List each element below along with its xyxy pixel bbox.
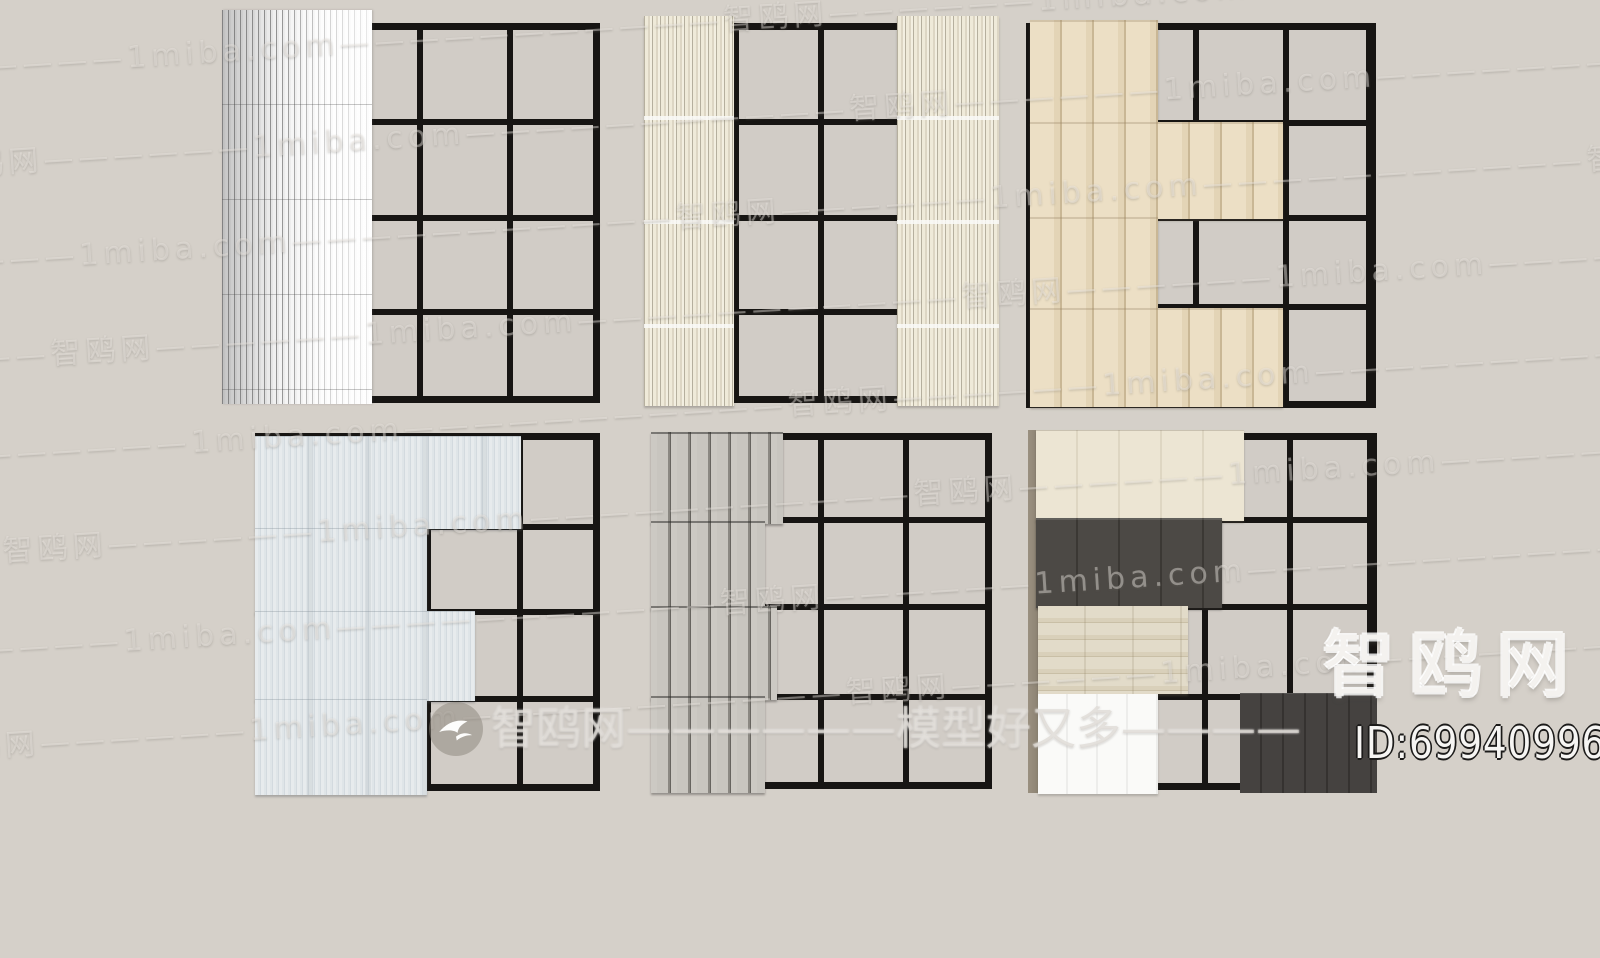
gray-slat-curtain-row1 — [651, 432, 783, 524]
product-id-label: ID:699409965 — [1354, 722, 1600, 766]
dark-curtain-row4-right — [1240, 693, 1377, 793]
pale-blue-curtain-row1 — [255, 436, 521, 529]
charcoal-curtain-row2 — [1036, 518, 1222, 608]
beige-curtain-row1 — [1030, 20, 1158, 124]
gray-slat-curtain-row2 — [651, 521, 765, 610]
pale-blue-curtain-row2 — [255, 528, 427, 614]
pleated-curtain-left — [644, 16, 734, 406]
window-mullion — [507, 30, 513, 396]
white-curtain-row4 — [1038, 694, 1158, 794]
sheer-curtain — [222, 10, 372, 404]
beige-curtain-row4 — [1030, 308, 1283, 407]
gray-slat-curtain-row3 — [651, 606, 777, 700]
window-mullion — [818, 30, 824, 396]
model-preview-canvas: —————智鸥网——————1miba.com———————————智鸥网———… — [0, 0, 1600, 804]
pleated-curtain-right — [897, 16, 999, 406]
window-mullion — [417, 30, 423, 396]
gray-slat-curtain-row4 — [651, 696, 765, 793]
ivory-curtain-row1 — [1036, 430, 1244, 521]
pale-blue-curtain-row4 — [255, 699, 427, 795]
beige-curtain-row2 — [1030, 122, 1283, 219]
beige-curtain-row3 — [1030, 217, 1158, 310]
roman-shade-row3 — [1038, 606, 1188, 694]
window-mullion — [903, 440, 909, 782]
pale-blue-curtain-row3 — [255, 611, 475, 701]
window-mullion — [818, 440, 824, 782]
